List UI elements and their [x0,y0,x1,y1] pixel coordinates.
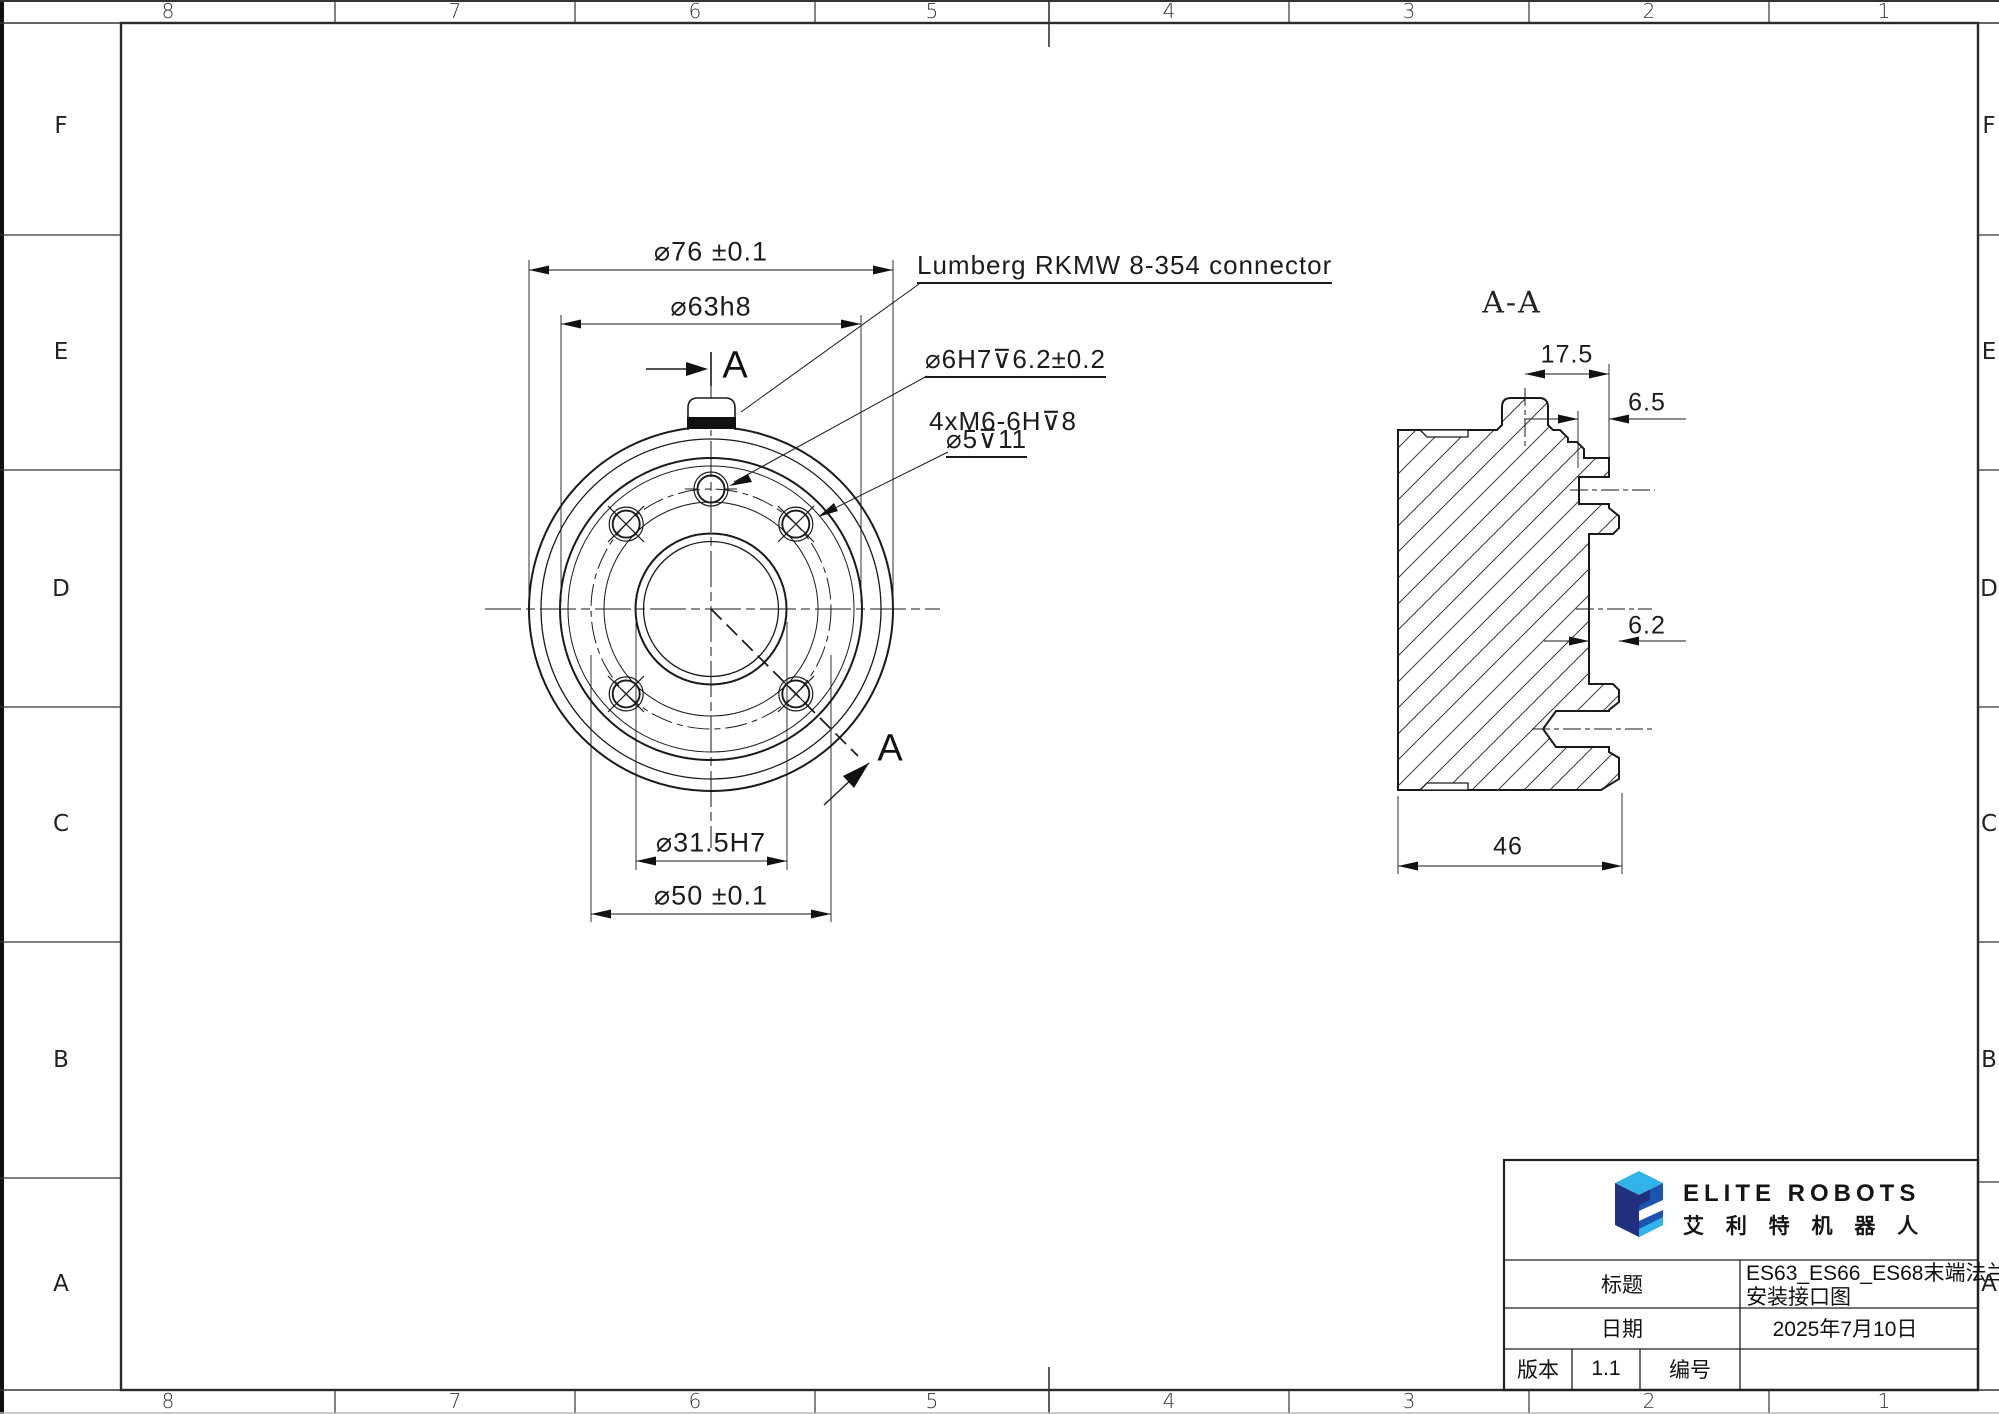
dim-diameter-31-5: ⌀31.5H7 [656,828,766,859]
section-cut-marks [646,352,869,805]
grid-left-B: B [53,1047,69,1073]
grid-top-6: 6 [689,0,702,23]
section-label-top: A [722,345,747,388]
grid-left-D: D [52,576,70,602]
title-value-line2: 安装接口图 [1746,1286,1851,1310]
grid-bottom-8: 8 [162,1389,175,1413]
grid-top-3: 3 [1403,0,1416,23]
section-body [1398,398,1619,790]
section-view-title: A-A [1482,286,1541,321]
grid-top-1: 1 [1878,0,1891,23]
grid-left-E: E [54,339,69,365]
front-view-linework [485,260,948,922]
grid-left-C: C [53,811,69,837]
title-label: 标题 [1601,1269,1643,1299]
grid-top-5: 5 [926,0,939,23]
grid-top-2: 2 [1643,0,1656,23]
callout-dowel-hole: ⌀6H7⊽6.2±0.2 [925,344,1106,378]
dim-6-5: 6.5 [1628,389,1666,418]
date-label: 日期 [1601,1313,1643,1343]
grid-bottom-6: 6 [689,1389,702,1413]
grid-left-F: F [54,113,67,139]
grid-right-E: E [1982,339,1997,365]
grid-bottom-2: 2 [1643,1389,1656,1413]
dim-6-2: 6.2 [1628,612,1666,641]
grid-bottom-1: 1 [1878,1389,1891,1413]
grid-top-8: 8 [162,0,175,23]
version-label: 版本 [1517,1354,1559,1384]
callout-lumberg-connector: Lumberg RKMW 8-354 connector [917,250,1332,284]
leader-lines [729,284,948,517]
date-value: 2025年7月10日 [1773,1313,1918,1343]
dim-diameter-50: ⌀50 ±0.1 [654,881,768,912]
dim-46: 46 [1493,833,1523,862]
grid-right-B: B [1981,1047,1997,1073]
grid-right-D: D [1980,576,1998,602]
grid-bottom-5: 5 [926,1389,939,1413]
dim-17-5: 17.5 [1541,341,1594,370]
number-label: 编号 [1669,1354,1711,1384]
dim-diameter-76: ⌀76 ±0.1 [654,237,768,268]
grid-right-F: F [1982,113,1995,139]
drawing-sheet: 8 7 6 5 4 3 2 1 8 7 6 5 4 3 2 1 F E D C … [0,0,1999,1414]
grid-left-A: A [53,1271,69,1297]
callout-drill-depth: ⌀5⊽11 [946,424,1027,458]
version-value: 1.1 [1591,1357,1620,1381]
logo-text-cn: 艾 利 特 机 器 人 [1683,1210,1926,1240]
grid-top-4: 4 [1163,0,1176,23]
connector-outline [687,398,736,430]
grid-bottom-3: 3 [1403,1389,1416,1413]
elite-robots-logo-icon [1615,1171,1663,1237]
grid-bottom-4: 4 [1163,1389,1176,1413]
grid-bottom-7: 7 [449,1389,462,1413]
dim-diameter-63: ⌀63h8 [670,292,751,323]
logo-text-en: ELITE ROBOTS [1683,1180,1920,1208]
grid-right-C: C [1981,811,1997,837]
grid-top-7: 7 [449,0,462,23]
title-value-line1: ES63_ES66_ES68末端法兰 [1746,1262,1999,1286]
section-label-bottom: A [877,728,902,771]
